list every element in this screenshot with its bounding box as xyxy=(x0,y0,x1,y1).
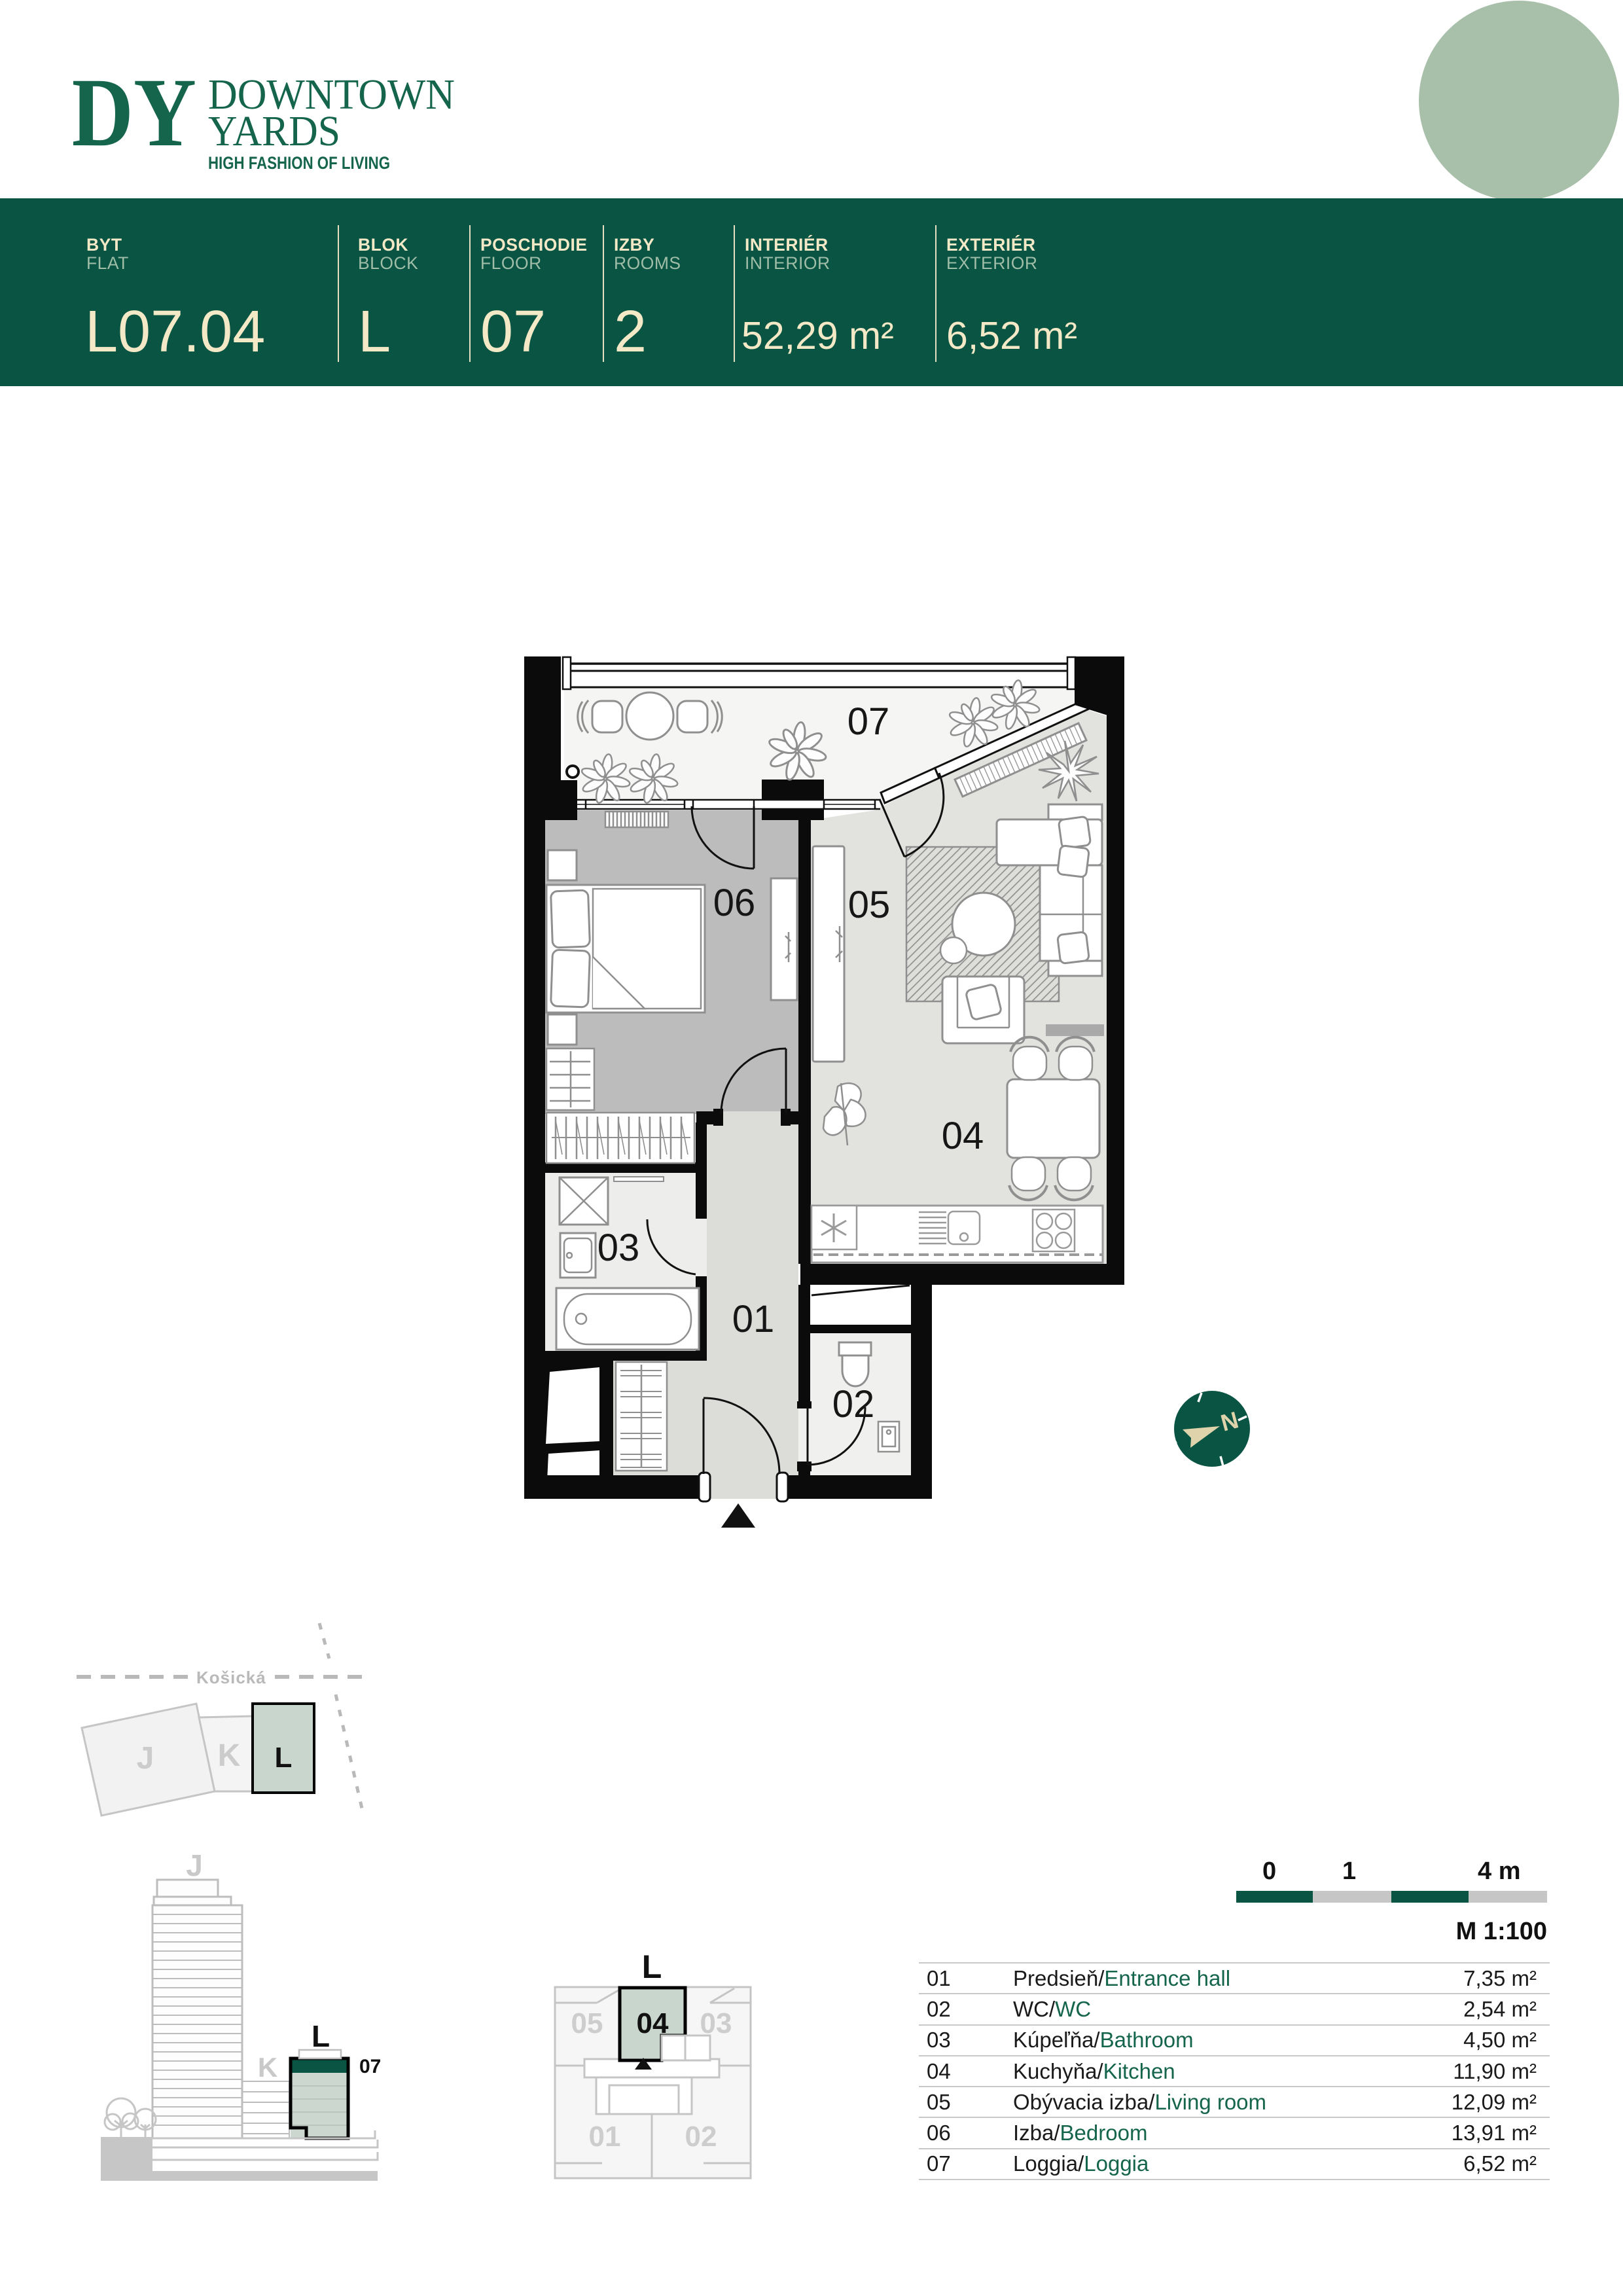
svg-text:K: K xyxy=(258,2052,277,2083)
svg-text:01: 01 xyxy=(732,1298,775,1340)
svg-text:L: L xyxy=(312,2019,330,2053)
svg-text:DY: DY xyxy=(73,72,196,151)
svg-text:05: 05 xyxy=(571,2007,603,2039)
svg-text:J: J xyxy=(186,1848,203,1882)
svg-text:Košická: Košická xyxy=(196,1668,266,1687)
svg-text:K: K xyxy=(218,1738,241,1773)
svg-text:04: 04 xyxy=(942,1115,984,1157)
svg-text:05: 05 xyxy=(848,884,891,926)
svg-text:L: L xyxy=(275,1742,293,1774)
svg-text:04: 04 xyxy=(637,2007,669,2039)
svg-text:J: J xyxy=(137,1741,154,1776)
svg-text:06: 06 xyxy=(713,882,756,924)
svg-text:07: 07 xyxy=(847,700,890,743)
svg-text:01: 01 xyxy=(589,2121,621,2153)
svg-text:YARDS: YARDS xyxy=(208,107,340,155)
svg-text:HIGH FASHION OF LIVING: HIGH FASHION OF LIVING xyxy=(208,153,390,173)
svg-text:07: 07 xyxy=(359,2056,381,2077)
svg-text:L: L xyxy=(642,1948,662,1985)
svg-text:02: 02 xyxy=(832,1383,875,1426)
svg-text:03: 03 xyxy=(597,1227,640,1269)
svg-text:02: 02 xyxy=(685,2121,717,2153)
svg-text:03: 03 xyxy=(700,2007,732,2039)
